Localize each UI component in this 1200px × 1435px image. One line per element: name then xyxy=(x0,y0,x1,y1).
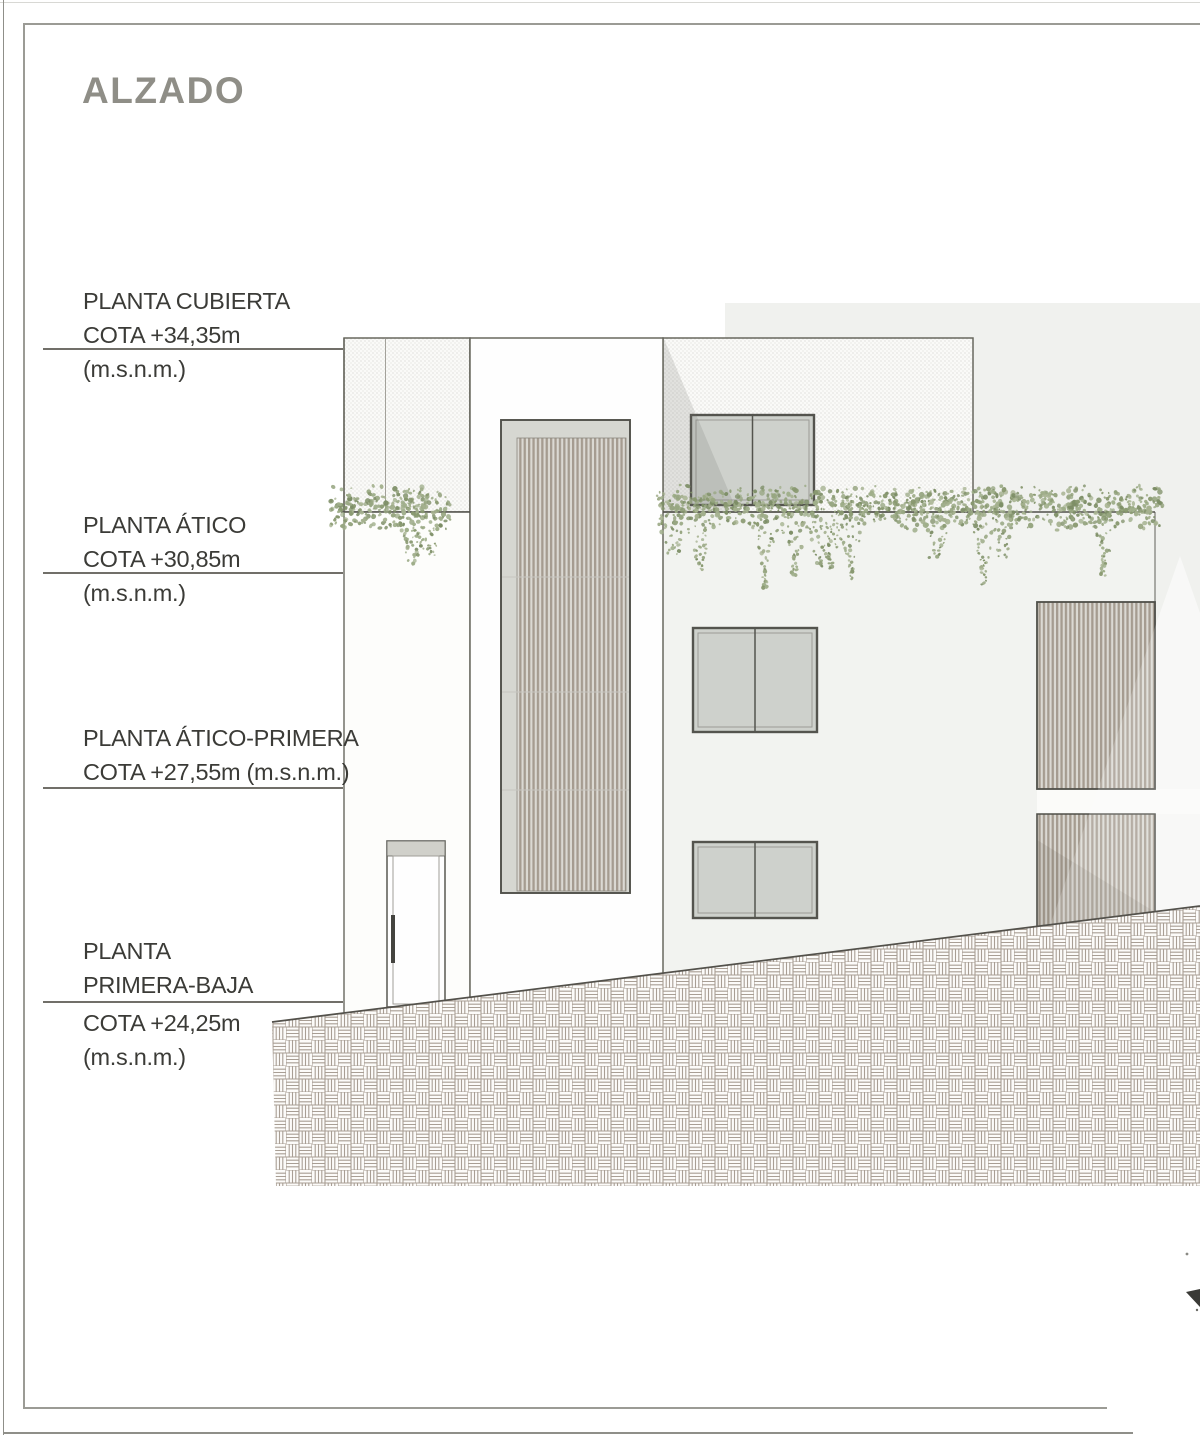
level-name: PRIMERA-BAJA xyxy=(83,968,253,1002)
level-name: PLANTA CUBIERTA xyxy=(83,284,290,318)
central-louver-window xyxy=(501,420,630,893)
level-label-atico-primera: PLANTA ÁTICO-PRIMERA COTA +27,55m (m.s.n… xyxy=(83,721,359,789)
level-cota: COTA +34,35m xyxy=(83,318,290,352)
left-tower xyxy=(344,338,470,1014)
left-tower-stipple xyxy=(344,338,470,512)
level-label-primera-baja: PLANTA PRIMERA-BAJA xyxy=(83,934,253,1002)
level-name: PLANTA ÁTICO xyxy=(83,508,246,542)
level-name: PLANTA ÁTICO-PRIMERA xyxy=(83,721,359,755)
outer-border-top xyxy=(0,2,1200,3)
window-lower xyxy=(693,842,817,918)
level-label-cubierta: PLANTA CUBIERTA COTA +34,35m xyxy=(83,284,290,352)
level-cota-block: COTA +24,25m (m.s.n.m.) xyxy=(83,1006,240,1074)
window-upper xyxy=(693,628,817,732)
level-cota: COTA +30,85m xyxy=(83,542,246,576)
level-name: PLANTA xyxy=(83,934,253,968)
level-label-atico: PLANTA ÁTICO COTA +30,85m xyxy=(83,508,246,576)
elevation-drawing xyxy=(0,0,1200,1435)
outer-border-left xyxy=(3,0,5,1435)
inner-frame-bottom xyxy=(23,1407,1107,1409)
door-handle xyxy=(391,915,395,963)
corner-mark xyxy=(1186,1253,1200,1312)
level-cota: COTA +24,25m xyxy=(83,1006,240,1040)
penthouse xyxy=(663,338,973,512)
inner-frame-top xyxy=(23,23,1200,25)
outer-border-bottom xyxy=(3,1432,1133,1434)
entrance-door xyxy=(387,841,445,1007)
drawing-sheet: ALZADO PLANTA CUBIERTA COTA +34,35m (m.s… xyxy=(0,0,1200,1435)
inner-frame-left xyxy=(23,23,25,1409)
level-unit: (m.s.n.m.) xyxy=(83,1040,240,1074)
level-unit: (m.s.n.m.) xyxy=(83,576,186,610)
drawing-title: ALZADO xyxy=(82,70,245,112)
central-tower xyxy=(470,338,663,999)
level-cota: COTA +27,55m (m.s.n.m.) xyxy=(83,755,359,789)
level-unit: (m.s.n.m.) xyxy=(83,352,186,386)
